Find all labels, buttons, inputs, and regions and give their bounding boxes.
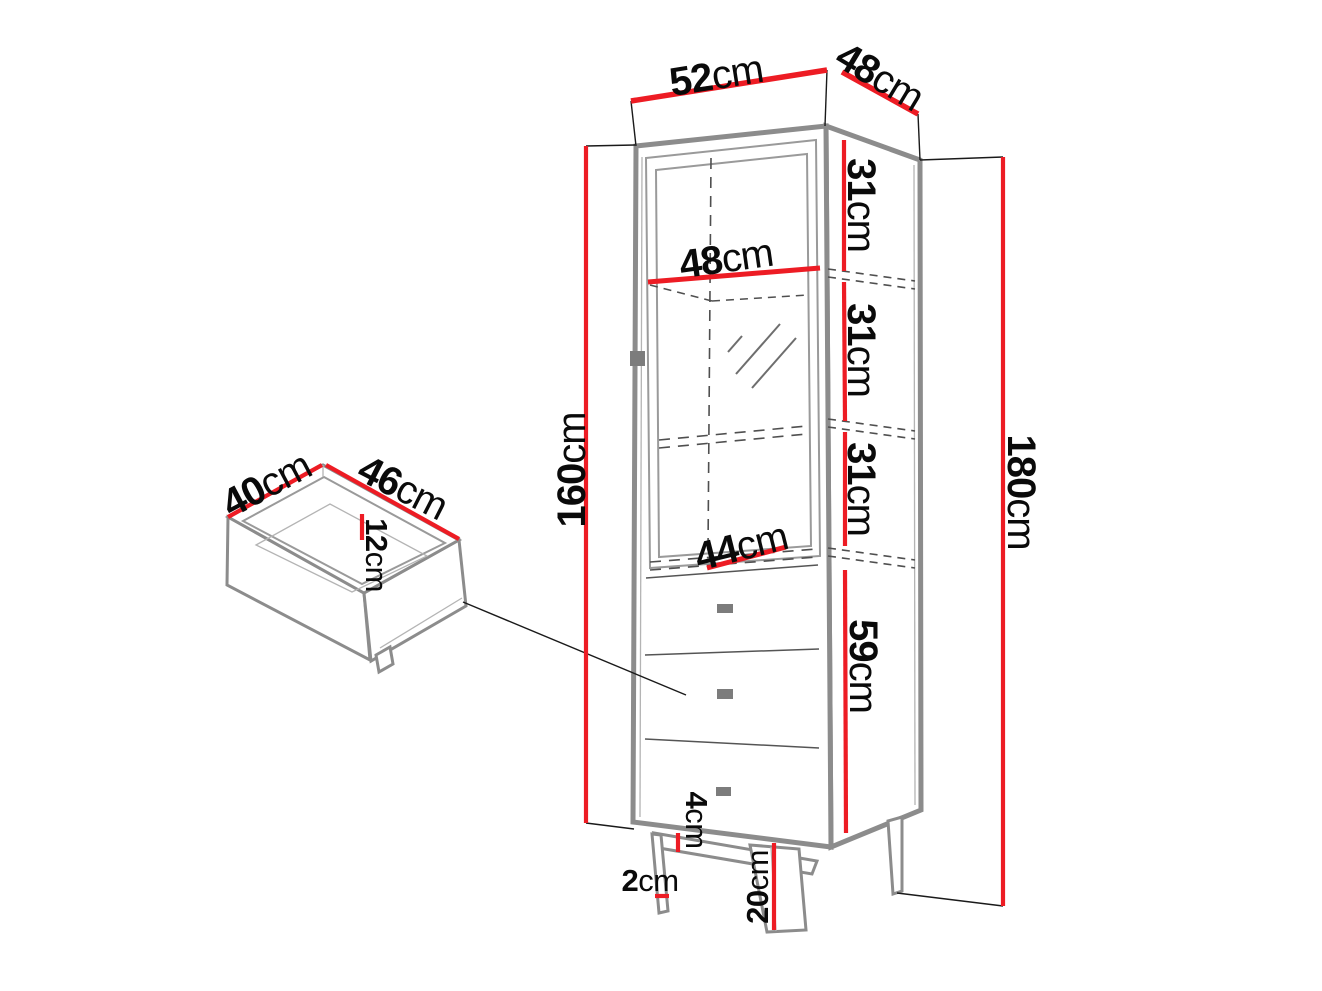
ext-line bbox=[920, 157, 1003, 160]
label-section-bottom: 31cm bbox=[839, 442, 883, 536]
diagram-canvas: 52cm 48cm 160cm 180cm 31cm 31cm 31cm 48c… bbox=[0, 0, 1322, 991]
drawer-handle bbox=[717, 689, 733, 699]
drawer-handle bbox=[717, 604, 733, 613]
cabinet-front-face bbox=[633, 126, 831, 847]
label-leg-height: 20cm bbox=[740, 850, 775, 924]
label-top-depth: 48cm bbox=[828, 34, 931, 120]
label-section-middle: 31cm bbox=[839, 303, 883, 397]
label-top-width: 52cm bbox=[666, 47, 766, 105]
ext-line bbox=[586, 823, 634, 829]
drawer-handle bbox=[716, 787, 731, 796]
label-drawer-height: 12cm bbox=[359, 518, 394, 592]
drawer-detail bbox=[227, 465, 686, 695]
ext-line bbox=[586, 145, 635, 146]
label-section-top: 31cm bbox=[839, 158, 883, 252]
label-leg-thickness: 2cm bbox=[621, 863, 678, 898]
ext-line bbox=[918, 114, 920, 160]
door-handle bbox=[630, 351, 645, 366]
rear-right-leg bbox=[888, 817, 902, 894]
label-plinth-height: 4cm bbox=[679, 791, 714, 848]
ext-line bbox=[897, 893, 1003, 906]
ext-line bbox=[825, 70, 827, 126]
furniture-dimension-diagram: 52cm 48cm 160cm 180cm 31cm 31cm 31cm 48c… bbox=[0, 0, 1322, 991]
label-body-height-left: 160cm bbox=[550, 412, 594, 527]
ext-line bbox=[631, 101, 636, 146]
label-drawer-section-height: 59cm bbox=[841, 619, 885, 713]
label-total-height-right: 180cm bbox=[999, 434, 1043, 549]
